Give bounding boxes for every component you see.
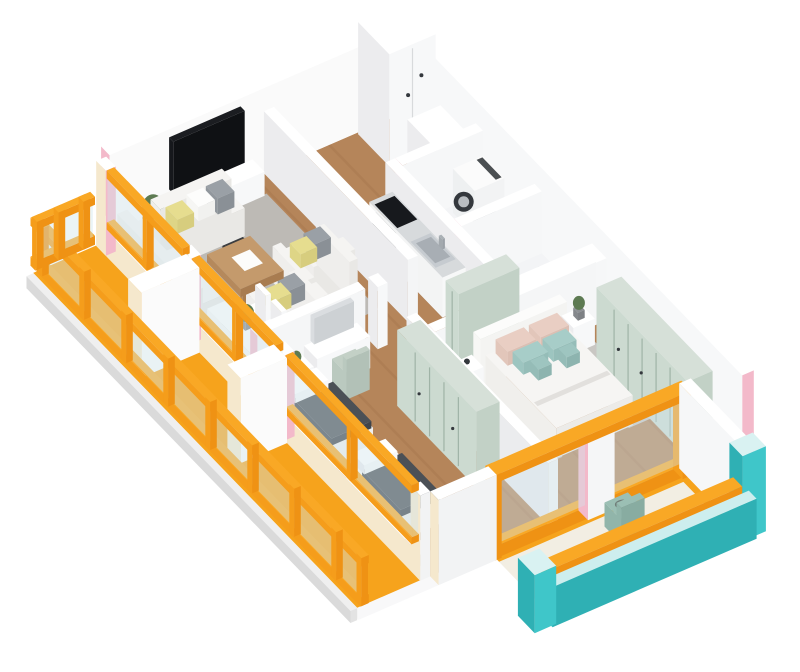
railing-sw-posts bbox=[168, 356, 175, 407]
railing-sw-posts bbox=[252, 443, 259, 494]
railing-sw-posts bbox=[289, 484, 294, 537]
railing-sw-posts bbox=[361, 555, 368, 606]
railing-sw-posts bbox=[126, 312, 133, 363]
sw-jamb-4 bbox=[420, 491, 430, 580]
wall-kids-north-a bbox=[378, 283, 388, 349]
railing-sw-posts bbox=[121, 310, 126, 363]
apartment-3d-floor-plan bbox=[0, 0, 800, 672]
kitchen-faucet bbox=[442, 238, 445, 249]
floor-plan-stage bbox=[0, 0, 800, 672]
railing-nw-posts bbox=[37, 219, 44, 270]
railing-sw-posts bbox=[163, 354, 168, 407]
washer-door-ring bbox=[458, 196, 469, 207]
railing-nw-posts bbox=[79, 197, 84, 250]
railing-nw-posts bbox=[59, 210, 66, 261]
railing-sw-posts bbox=[79, 267, 84, 320]
master-wardrobe-knob-1 bbox=[617, 348, 620, 351]
railing-sw-posts bbox=[294, 486, 301, 537]
tv-screen bbox=[169, 137, 173, 193]
master-wardrobe-knob-2 bbox=[640, 371, 643, 374]
sw-jamb-1 bbox=[96, 161, 106, 256]
entry-closet-knob-1 bbox=[419, 73, 423, 77]
wall-kids-se bbox=[430, 491, 438, 585]
railing-nw-posts bbox=[54, 208, 59, 261]
railing-sw-posts bbox=[336, 529, 343, 580]
nightstand-1-plant bbox=[573, 296, 585, 310]
kids-desk-panel bbox=[311, 315, 315, 345]
window-3-glass bbox=[412, 491, 418, 537]
railing-sw-posts bbox=[84, 269, 91, 320]
railing-sw-posts bbox=[205, 397, 210, 450]
railing-sw-posts bbox=[331, 527, 336, 580]
kids-wardrobe-knob-2 bbox=[451, 427, 454, 430]
railing-nw-posts bbox=[83, 199, 90, 250]
wall-living-kitchen bbox=[408, 256, 418, 322]
teal-end-column bbox=[535, 566, 557, 633]
railing-sw-posts bbox=[357, 553, 362, 606]
railing-sw-posts bbox=[210, 399, 217, 450]
railing-sw-posts bbox=[247, 441, 252, 494]
railing-nw-posts bbox=[32, 217, 37, 270]
entry-closet-knob-2 bbox=[406, 93, 410, 97]
kids-wardrobe-knob-1 bbox=[418, 392, 421, 395]
